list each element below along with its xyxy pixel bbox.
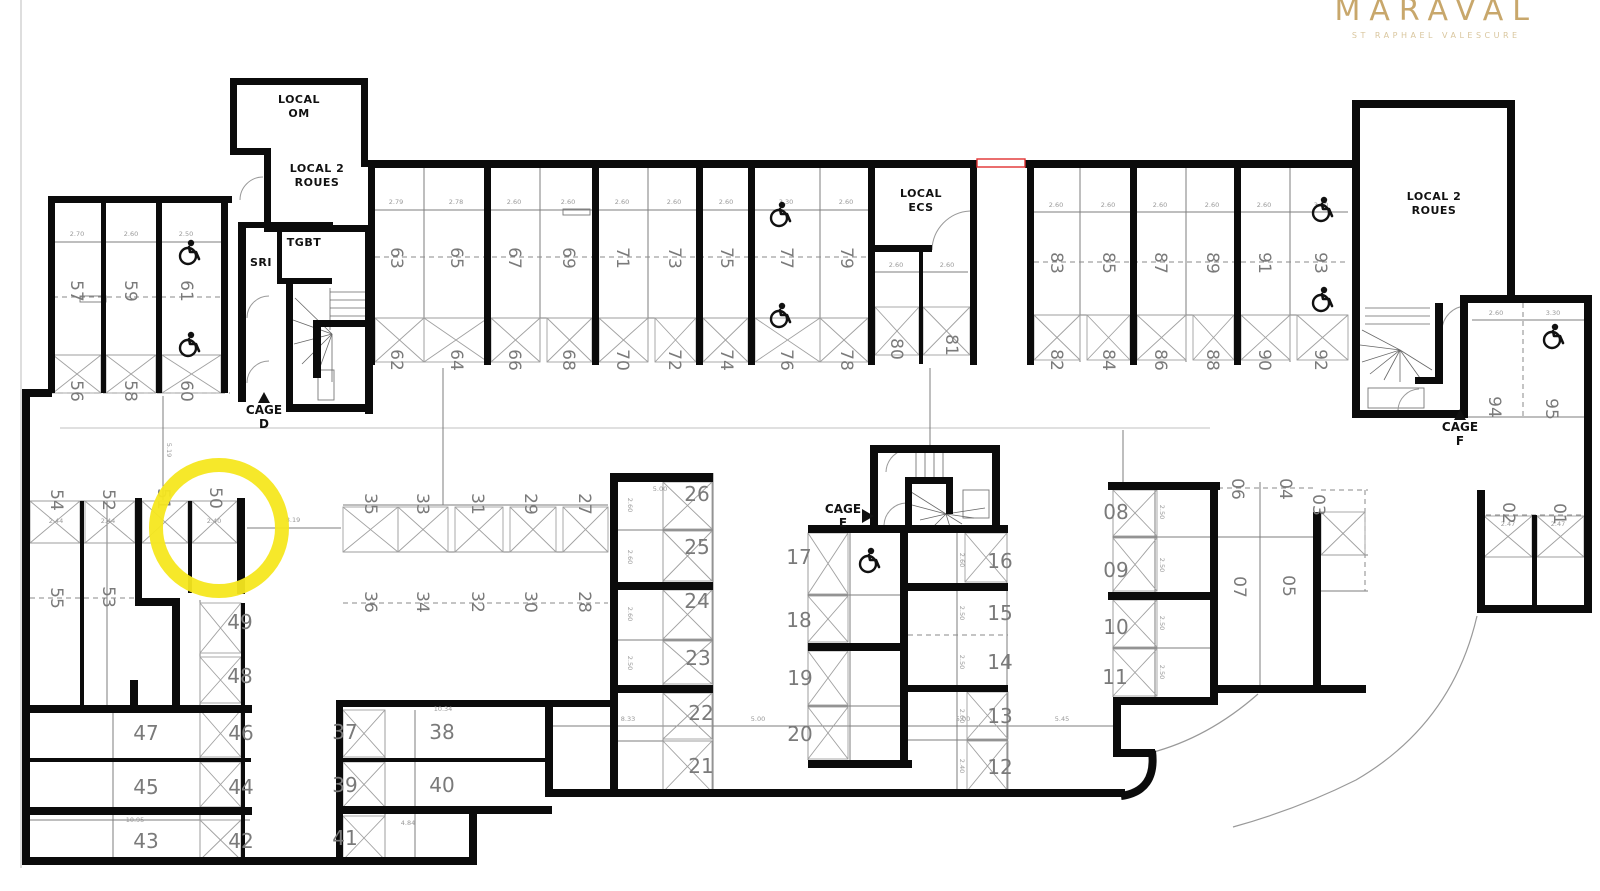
space-number-71: 71 — [612, 247, 632, 269]
space-number-85: 85 — [1098, 252, 1118, 274]
wall — [469, 808, 477, 865]
space-number-78: 78 — [836, 349, 856, 371]
space-number-49: 49 — [227, 610, 252, 634]
space-number-16: 16 — [987, 549, 1012, 573]
wall — [1477, 490, 1485, 613]
space-number-60: 60 — [176, 380, 196, 402]
wall — [545, 700, 553, 797]
wall — [22, 857, 477, 865]
floor-plan-page: 2.702.602.502.792.782.602.602.602.602.60… — [0, 0, 1600, 891]
wall — [1113, 697, 1218, 705]
wall — [336, 700, 615, 707]
wheelchair-icon — [180, 340, 196, 356]
wall — [1130, 167, 1137, 365]
space-number-13: 13 — [987, 704, 1012, 728]
space-number-36: 36 — [360, 591, 380, 613]
wheelchair-icon — [771, 311, 787, 327]
dimension-label: 2.60 — [1101, 201, 1115, 209]
stair-tread — [1362, 330, 1400, 350]
dimension-label: 2.50 — [179, 230, 193, 238]
wheelchair-icon — [188, 240, 194, 246]
dimension-label: 2.60 — [626, 498, 634, 512]
space-number-50: 50 — [205, 487, 225, 509]
room-label-local-2-roues-west: LOCAL 2 — [290, 162, 345, 175]
space-number-65: 65 — [446, 247, 466, 269]
space-number-44: 44 — [228, 775, 253, 799]
wall — [368, 160, 977, 168]
space-number-88: 88 — [1202, 349, 1222, 371]
space-number-22: 22 — [688, 701, 713, 725]
wall — [240, 222, 333, 228]
space-number-87: 87 — [1150, 252, 1170, 274]
space-number-95: 95 — [1541, 398, 1561, 420]
space-number-61: 61 — [176, 280, 196, 302]
wall — [101, 203, 106, 393]
wall — [545, 789, 1125, 797]
space-number-30: 30 — [520, 591, 540, 613]
space-number-18: 18 — [786, 608, 811, 632]
dimension-label: 5.00 — [751, 715, 765, 723]
space-number-25: 25 — [684, 535, 709, 559]
wall — [286, 404, 373, 412]
stair-tread — [1400, 350, 1420, 378]
wall — [870, 445, 1000, 453]
wall — [1313, 512, 1321, 688]
door-swing-arc — [884, 503, 906, 525]
brand-title: MARAVAL — [1335, 0, 1538, 26]
space-number-41: 41 — [332, 826, 357, 850]
space-number-31: 31 — [467, 493, 487, 515]
space-number-82: 82 — [1046, 349, 1066, 371]
stair-tread — [1370, 350, 1400, 374]
dimension-label: 8.33 — [621, 715, 635, 723]
dimension-label: 2.60 — [615, 198, 629, 206]
dimension-label: 2.60 — [719, 198, 733, 206]
dimension-label: 2.60 — [958, 553, 966, 567]
space-number-07: 07 — [1229, 576, 1249, 598]
red-opening-marker — [977, 159, 1025, 167]
stair-tread — [1400, 350, 1432, 370]
wall — [156, 203, 162, 393]
space-number-55: 55 — [46, 587, 66, 609]
space-number-21: 21 — [688, 754, 713, 778]
dimension-label: 2.60 — [889, 261, 903, 269]
dimension-label: 2.60 — [626, 607, 634, 621]
space-number-62: 62 — [386, 349, 406, 371]
dimension-label: 3.30 — [1546, 309, 1560, 317]
door-swing-arc — [240, 177, 263, 200]
stair-tread — [908, 490, 946, 514]
wall — [22, 807, 252, 815]
space-number-38: 38 — [429, 720, 454, 744]
wall — [30, 758, 251, 762]
wheelchair-icon — [1321, 197, 1327, 203]
wall — [1352, 100, 1360, 417]
dimension-label: 2.50 — [958, 655, 966, 669]
wall — [313, 320, 321, 378]
wall — [905, 477, 912, 529]
dimension-label: 2.60 — [1257, 201, 1271, 209]
space-number-76: 76 — [776, 349, 796, 371]
wall — [748, 167, 755, 365]
dimension-label: 2.60 — [124, 230, 138, 238]
dimension-label: 2.60 — [626, 550, 634, 564]
wall — [1435, 303, 1443, 381]
dimension-label: 2.50 — [1158, 505, 1166, 519]
wall — [610, 473, 713, 482]
stair-label-cage-e: CAGE — [825, 502, 861, 516]
space-number-73: 73 — [664, 247, 684, 269]
wall — [919, 252, 923, 364]
space-number-11: 11 — [1102, 665, 1127, 689]
wheelchair-icon — [860, 556, 876, 572]
space-number-77: 77 — [776, 247, 796, 269]
dimension-label: 2.60 — [1489, 309, 1503, 317]
space-number-19: 19 — [787, 666, 812, 690]
wall — [868, 160, 875, 365]
space-number-91: 91 — [1254, 252, 1274, 274]
space-number-43: 43 — [133, 829, 158, 853]
wheelchair-icon — [1313, 295, 1329, 311]
wall — [1027, 160, 1034, 365]
space-number-48: 48 — [227, 664, 252, 688]
wall — [48, 196, 232, 203]
space-number-56: 56 — [66, 380, 86, 402]
dimension-label: 2.60 — [667, 198, 681, 206]
space-number-28: 28 — [574, 591, 594, 613]
wall — [1218, 685, 1366, 693]
dimension-label: 2.60 — [561, 198, 575, 206]
dimension-label: 2.60 — [958, 709, 966, 723]
wall — [1352, 410, 1462, 418]
space-number-37: 37 — [332, 720, 357, 744]
space-number-26: 26 — [684, 482, 709, 506]
dimension-label: 2.50 — [1158, 558, 1166, 572]
room-label-tgbt: TGBT — [287, 236, 321, 249]
space-number-33: 33 — [412, 493, 432, 515]
dimension-label: 5.00 — [653, 485, 667, 493]
room-label-local-2-roues-west: ROUES — [295, 176, 340, 189]
room-label-sri: SRI — [250, 256, 272, 269]
wall — [1352, 100, 1515, 108]
wall — [1507, 100, 1515, 303]
wall — [130, 680, 138, 710]
brand-logo: MARAVAL ST RAPHAEL VALESCURE — [1335, 0, 1538, 40]
dimension-label: 2.40 — [958, 759, 966, 773]
space-number-15: 15 — [987, 601, 1012, 625]
wall — [135, 498, 142, 606]
dimension-label: 2.50 — [1158, 665, 1166, 679]
wall — [484, 167, 491, 365]
wall — [868, 245, 932, 252]
wall — [1234, 167, 1241, 365]
space-number-57: 57 — [66, 280, 86, 302]
space-number-66: 66 — [504, 349, 524, 371]
stair-marker-triangle-cage-d — [258, 392, 270, 403]
dimension-label: 2.70 — [70, 230, 84, 238]
wall — [1415, 377, 1443, 384]
dimension-label: 2.44 — [101, 517, 115, 525]
dimension-label: 10.34 — [434, 705, 453, 713]
wall — [1108, 482, 1220, 490]
space-number-52: 52 — [98, 489, 118, 511]
room-label-local-2-roues-east: ROUES — [1412, 204, 1457, 217]
stair-label-cage-f: CAGE — [1442, 420, 1478, 434]
wall — [80, 501, 84, 707]
wheelchair-icon — [1321, 287, 1327, 293]
space-number-53: 53 — [98, 586, 118, 608]
dimension-label: 5.19 — [165, 443, 173, 457]
wall — [277, 228, 282, 284]
stair-label-cage-d: D — [259, 417, 269, 431]
space-number-69: 69 — [558, 247, 578, 269]
space-number-06: 06 — [1227, 478, 1247, 500]
space-number-01: 01 — [1549, 503, 1569, 525]
space-number-79: 79 — [836, 247, 856, 269]
stair-tread — [1360, 345, 1400, 350]
dimension-label: 2.60 — [507, 198, 521, 206]
space-number-64: 64 — [446, 349, 466, 371]
space-number-12: 12 — [987, 755, 1012, 779]
door-swing-arc — [1398, 389, 1419, 410]
stair-tread — [934, 514, 946, 526]
space-number-34: 34 — [412, 591, 432, 613]
space-number-89: 89 — [1202, 252, 1222, 274]
wall — [900, 525, 908, 768]
door-swing-arc — [247, 361, 269, 383]
space-number-03: 03 — [1308, 494, 1328, 516]
wall — [343, 758, 549, 762]
wheelchair-icon — [1552, 324, 1558, 330]
space-number-09: 09 — [1103, 558, 1128, 582]
stair-label-cage-d: CAGE — [246, 403, 282, 417]
space-number-46: 46 — [228, 721, 253, 745]
wheelchair-icon — [188, 332, 194, 338]
dimension-label: 2.78 — [449, 198, 463, 206]
space-number-32: 32 — [467, 591, 487, 613]
space-number-24: 24 — [684, 589, 709, 613]
wall — [610, 685, 713, 693]
door-swing-arc — [932, 211, 970, 250]
wall-curve — [1121, 751, 1153, 796]
fixture — [1368, 388, 1424, 408]
space-number-45: 45 — [133, 775, 158, 799]
wall — [1108, 592, 1218, 600]
wall — [368, 160, 375, 365]
wall — [808, 643, 900, 651]
dimension-label: 2.40 — [207, 517, 221, 525]
wall — [592, 167, 599, 365]
wall — [48, 196, 55, 393]
space-number-63: 63 — [386, 247, 406, 269]
room-label-local-2-roues-east: LOCAL 2 — [1407, 190, 1462, 203]
wall — [908, 685, 1008, 692]
dimension-label: 2.50 — [1158, 616, 1166, 630]
space-number-23: 23 — [685, 646, 710, 670]
space-number-84: 84 — [1098, 349, 1118, 371]
dimension-label: 2.60 — [1153, 201, 1167, 209]
dimension-label: 2.60 — [839, 198, 853, 206]
dimension-label: 5.45 — [1055, 715, 1069, 723]
space-number-81: 81 — [941, 334, 961, 356]
wall — [905, 477, 953, 484]
space-number-68: 68 — [558, 349, 578, 371]
space-number-72: 72 — [664, 349, 684, 371]
stair-label-cage-f: F — [1456, 434, 1464, 448]
space-number-54: 54 — [46, 489, 66, 511]
wall — [1025, 160, 1352, 168]
stair-tread — [912, 505, 946, 514]
wall — [238, 222, 246, 402]
space-number-20: 20 — [787, 722, 812, 746]
wall — [361, 78, 368, 167]
wall — [264, 148, 271, 232]
space-number-27: 27 — [574, 493, 594, 515]
space-number-75: 75 — [716, 247, 736, 269]
wall — [970, 160, 977, 365]
space-number-14: 14 — [987, 650, 1012, 674]
dimension-label: 2.50 — [958, 606, 966, 620]
space-number-94: 94 — [1484, 396, 1504, 418]
wall — [992, 445, 1000, 533]
dimension-label: 2.60 — [940, 261, 954, 269]
space-number-74: 74 — [716, 349, 736, 371]
wall — [908, 583, 1008, 591]
stair-label-cage-e: E — [839, 516, 847, 530]
wheelchair-icon — [1544, 332, 1560, 348]
space-number-80: 80 — [886, 338, 906, 360]
space-number-83: 83 — [1046, 252, 1066, 274]
dimension-label: 2.60 — [1205, 201, 1219, 209]
space-number-39: 39 — [332, 773, 357, 797]
wall — [946, 484, 953, 514]
wheelchair-icon — [779, 202, 785, 208]
wall — [30, 705, 252, 713]
room-label-local-om: LOCAL — [278, 93, 320, 106]
space-number-59: 59 — [120, 280, 140, 302]
dimension-label: 2.50 — [626, 656, 634, 670]
wheelchair-icon — [180, 248, 196, 264]
space-number-93: 93 — [1310, 252, 1330, 274]
space-number-42: 42 — [228, 829, 253, 853]
space-number-92: 92 — [1310, 349, 1330, 371]
wheelchair-icon — [868, 548, 874, 554]
wheelchair-icon — [779, 303, 785, 309]
wall — [172, 600, 180, 708]
stair-tread — [946, 514, 974, 518]
dimension-label: 10.95 — [126, 816, 145, 824]
wall — [696, 167, 703, 365]
wall — [286, 283, 293, 410]
space-number-47: 47 — [133, 721, 158, 745]
brand-subtitle: ST RAPHAEL VALESCURE — [1335, 32, 1538, 40]
wall — [808, 760, 912, 768]
space-number-29: 29 — [520, 493, 540, 515]
wall — [336, 806, 552, 814]
dimension-label: 2.79 — [389, 198, 403, 206]
space-number-35: 35 — [360, 493, 380, 515]
room-label-local-ecs: LOCAL — [900, 187, 942, 200]
door-swing-arc — [247, 296, 269, 318]
wall — [313, 320, 370, 327]
room-label-local-om: OM — [288, 107, 309, 120]
space-number-86: 86 — [1150, 349, 1170, 371]
space-number-10: 10 — [1103, 615, 1128, 639]
wall — [230, 78, 237, 155]
dimension-label: 4.84 — [401, 819, 415, 827]
space-number-90: 90 — [1254, 349, 1274, 371]
dimension-label: 2.44 — [49, 517, 63, 525]
stair-tread — [920, 514, 946, 520]
space-number-58: 58 — [120, 380, 140, 402]
space-number-40: 40 — [429, 773, 454, 797]
wall — [1464, 295, 1592, 303]
wall — [1584, 295, 1592, 613]
space-number-04: 04 — [1275, 478, 1295, 500]
wall — [230, 78, 368, 85]
ramp-curve — [1233, 616, 1477, 827]
space-number-70: 70 — [612, 349, 632, 371]
fixture — [963, 490, 989, 518]
wall — [221, 196, 228, 393]
wall — [22, 389, 30, 865]
space-number-17: 17 — [786, 545, 811, 569]
wall — [1460, 295, 1468, 418]
room-label-local-ecs: ECS — [908, 201, 933, 214]
wall — [1532, 515, 1537, 608]
space-number-67: 67 — [504, 247, 524, 269]
wall — [1113, 700, 1121, 757]
space-number-02: 02 — [1498, 502, 1518, 524]
floor-plan-svg: 2.702.602.502.792.782.602.602.602.602.60… — [0, 0, 1600, 891]
wheelchair-icon — [771, 210, 787, 226]
space-number-05: 05 — [1278, 575, 1298, 597]
space-number-08: 08 — [1103, 500, 1128, 524]
dimension-label: 2.60 — [1049, 201, 1063, 209]
wall — [610, 473, 618, 793]
